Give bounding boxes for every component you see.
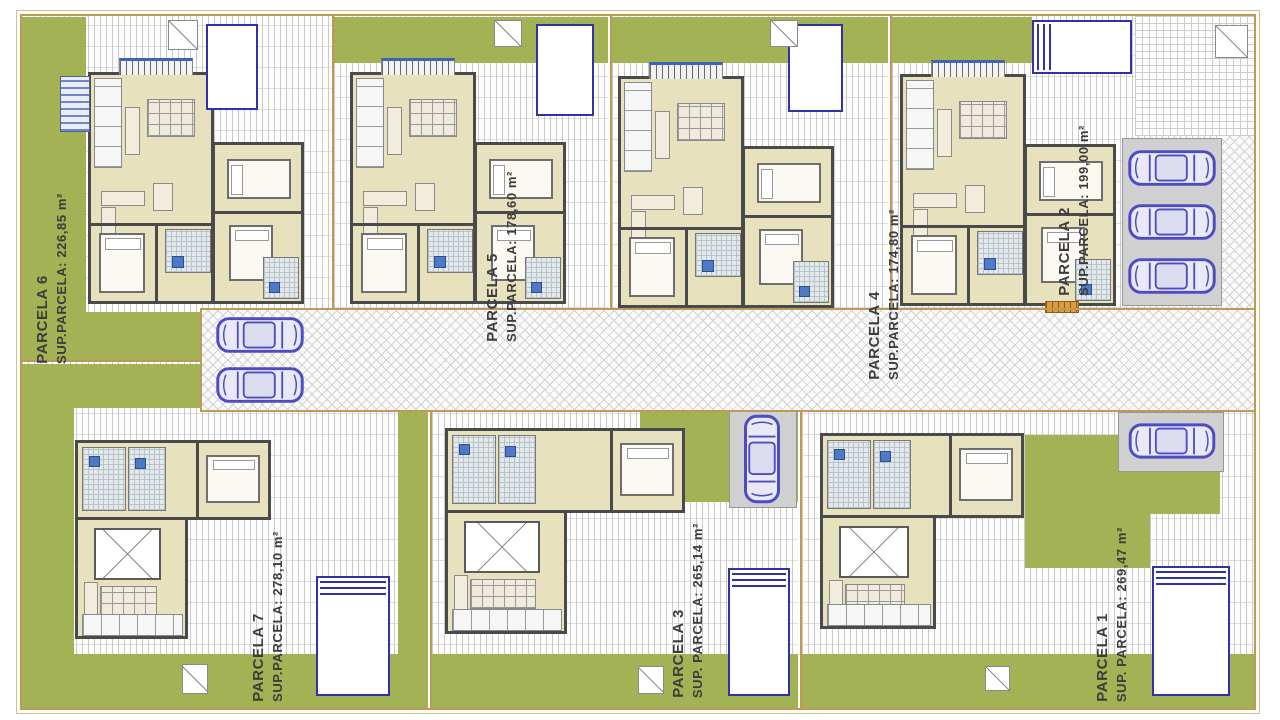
boundary-line: [430, 410, 432, 710]
parcel-label-parcela-1: PARCELA 1 SUP. PARCELA: 269,47 m²: [1094, 506, 1129, 702]
site-plan: PARCELA 6 SUP.PARCELA: 226,85 m² PARCELA…: [0, 0, 1280, 720]
parcel-name: PARCELA 3: [670, 609, 687, 698]
parcel-name: PARCELA 4: [866, 291, 883, 380]
parcel-area: SUP.PARCELA: 278,10 m²: [270, 531, 285, 702]
parcel-label-parcela-5: PARCELA 5 SUP.PARCELA: 178,60 m²: [484, 44, 519, 342]
boundary-line: [610, 14, 612, 310]
parcel-label-parcela-6: PARCELA 6 SUP.PARCELA: 226,85 m²: [34, 52, 69, 364]
road-edge-bottom: [200, 410, 1256, 412]
boundary-line: [1254, 14, 1256, 710]
boundary-line: [332, 14, 334, 310]
parcel-name: PARCELA 6: [34, 275, 51, 364]
boundary-line: [20, 708, 1256, 710]
parcel-area: SUP.PARCELA: 226,85 m²: [54, 193, 69, 364]
parcel-label-parcela-7: PARCELA 7 SUP.PARCELA: 278,10 m²: [250, 508, 285, 702]
parcel-area: SUP. PARCELA: 269,47 m²: [1114, 527, 1129, 702]
parcel-area: SUP.PARCELA: 174,80 m²: [886, 209, 901, 380]
parcel-name: PARCELA 5: [484, 253, 501, 342]
parcel-area: SUP.PARCELA: 199,00 m²: [1076, 125, 1091, 296]
boundary-line: [20, 14, 22, 710]
road-edge-top: [200, 308, 1256, 310]
boundary-line: [800, 410, 802, 710]
parcel-name: PARCELA 1: [1094, 613, 1111, 702]
parcel-name: PARCELA 2: [1056, 207, 1073, 296]
parcel-area: SUP.PARCELA: 178,60 m²: [504, 171, 519, 342]
parcel-name: PARCELA 7: [250, 613, 267, 702]
parcel-label-parcela-3: PARCELA 3 SUP. PARCELA: 265,14 m²: [670, 500, 705, 698]
boundary-line: [20, 14, 1256, 16]
parcel-area: SUP. PARCELA: 265,14 m²: [690, 523, 705, 698]
road-edge-left: [200, 308, 202, 412]
parcel-label-parcela-2: PARCELA 2 SUP.PARCELA: 199,00 m²: [1056, 18, 1091, 296]
parcel-label-parcela-4: PARCELA 4 SUP.PARCELA: 174,80 m²: [866, 96, 901, 380]
